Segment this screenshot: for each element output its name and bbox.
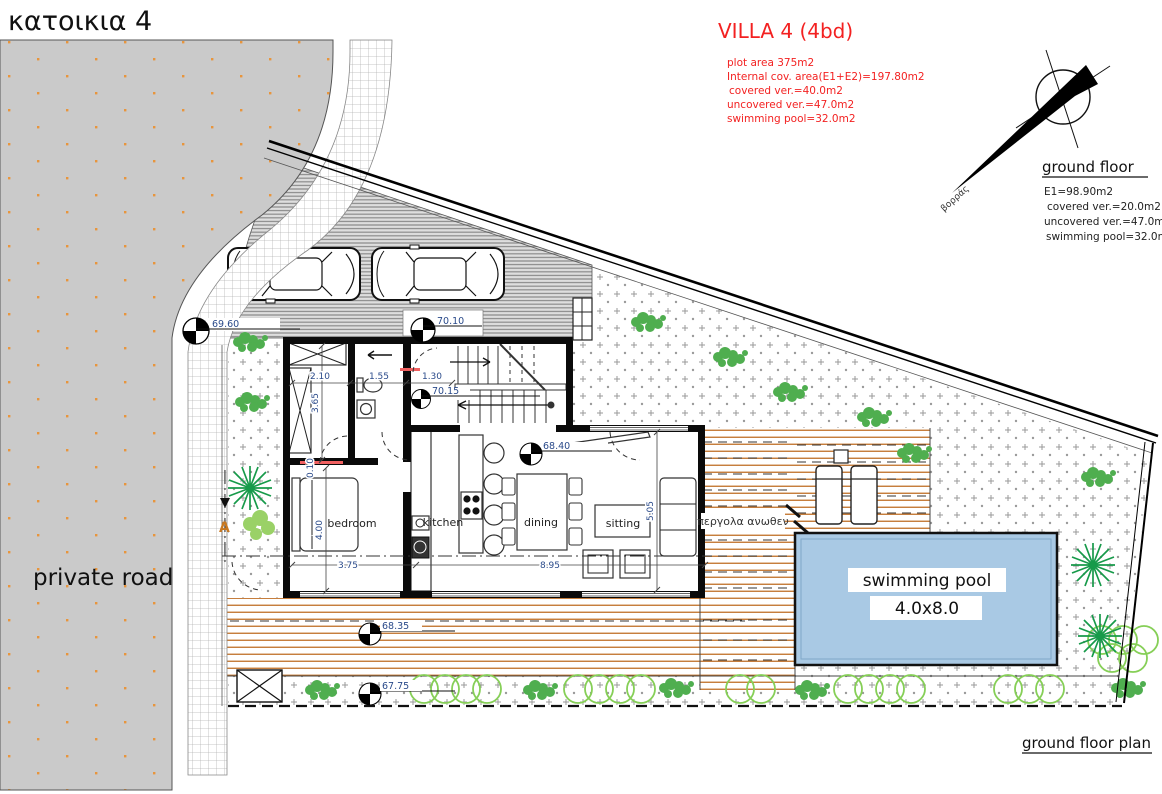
pool-size-label: 4.0x8.0 <box>895 599 959 619</box>
level-68-40: 68.40 <box>543 441 570 452</box>
floor-plan-sheet: swimming pool 4.0x8.0 <box>0 0 1162 794</box>
gf-spec-line: uncovered ver.=47.0m2 <box>1044 216 1162 228</box>
gf-spec-line: covered ver.=20.0m2 <box>1047 201 1161 213</box>
dim-3-75: 3.75 <box>338 561 358 571</box>
car-icon <box>372 245 504 303</box>
dining-furniture <box>502 474 582 550</box>
level-marker-icon <box>359 623 381 645</box>
dim-0-10: 0.10 <box>306 458 316 478</box>
dim-1-30: 1.30 <box>422 372 442 382</box>
sitting-label: sitting <box>606 517 640 530</box>
villa-spec-line: Internal cov. area(E1+E2)=197.80m2 <box>727 71 925 83</box>
ground-floor-header: ground floor <box>1042 158 1135 176</box>
drawing-title: κατοικια 4 <box>8 6 152 37</box>
level-marker-icon <box>520 443 542 465</box>
level-marker-icon <box>183 318 209 344</box>
villa-spec-line: uncovered ver.=47.0m2 <box>727 99 854 111</box>
footer-title: ground floor plan <box>1022 734 1152 753</box>
gf-spec-line: E1=98.90m2 <box>1044 186 1113 198</box>
dim-1-55: 1.55 <box>369 372 389 382</box>
level-marker-icon <box>359 683 381 705</box>
dim-2-10: 2.10 <box>310 372 330 382</box>
level-marker-icon <box>411 318 435 342</box>
north-label: βορράς <box>939 184 971 214</box>
level-70-15: 70.15 <box>432 386 459 397</box>
level-68-35: 68.35 <box>382 621 409 632</box>
staircase <box>450 344 566 425</box>
private-road-label: private road <box>33 565 173 591</box>
villa-spec-line: swimming pool=32.0m2 <box>727 113 856 125</box>
section-marker-label: A <box>219 520 230 536</box>
level-67-75: 67.75 <box>382 681 409 692</box>
dim-5-05: 5.05 <box>646 501 656 521</box>
dim-8-95: 8.95 <box>540 561 560 571</box>
bedroom-label: bedroom <box>327 517 376 530</box>
dining-label: dining <box>524 516 558 529</box>
villa-info-block: VILLA 4 (4bd) plot area 375m2 Internal c… <box>718 19 925 125</box>
villa-spec-line: plot area 375m2 <box>727 57 814 69</box>
level-69-60: 69.60 <box>212 319 239 330</box>
swimming-pool: swimming pool 4.0x8.0 <box>795 533 1057 665</box>
service-box <box>237 670 282 702</box>
dim-4-00: 4.00 <box>315 520 325 540</box>
pergola-label: περγολα ανωθεν <box>697 515 788 528</box>
garage-side-window <box>573 298 592 340</box>
villa-header: VILLA 4 (4bd) <box>718 19 853 43</box>
site-plan-drawing: swimming pool 4.0x8.0 <box>0 0 1162 794</box>
dim-3-65: 3.65 <box>311 393 321 413</box>
villa-spec-line: covered ver.=40.0m2 <box>729 85 843 97</box>
ground-floor-info-block: ground floor E1=98.90m2 covered ver.=20.… <box>1042 158 1162 243</box>
gf-spec-line: swimming pool=32.0m2 <box>1046 231 1162 243</box>
kitchen-label: kitchen <box>423 516 464 529</box>
level-marker-icon <box>412 390 431 409</box>
pool-label: swimming pool <box>863 571 992 591</box>
level-70-10: 70.10 <box>437 316 464 327</box>
footer-label: ground floor plan <box>1022 734 1151 752</box>
